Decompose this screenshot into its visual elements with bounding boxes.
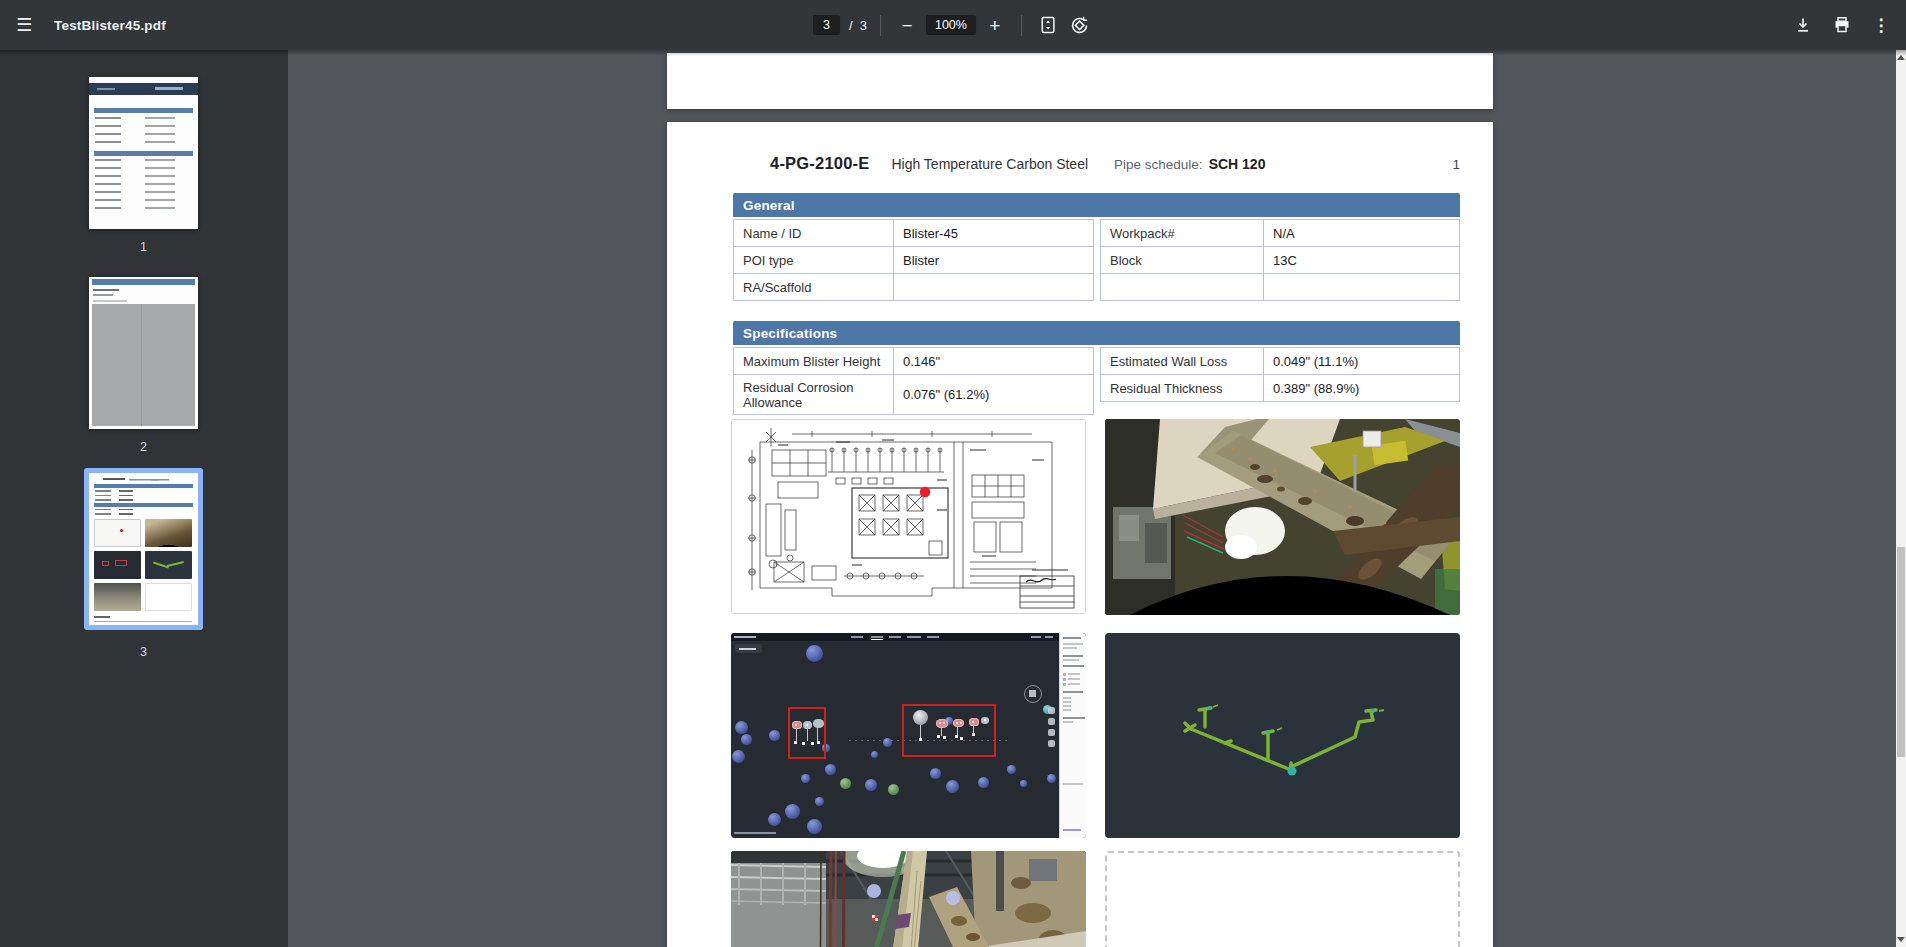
- cell-label: Residual Corrosion Allowance: [734, 375, 894, 415]
- cell-label: RA/Scaffold: [734, 274, 894, 301]
- line-id: 4-PG-2100-E: [770, 154, 869, 173]
- view-gizmo-icon: [1024, 685, 1042, 703]
- specifications-section: Specifications Maximum Blister Height 0.…: [733, 321, 1460, 415]
- poi-marker: [872, 915, 878, 921]
- toolbar-divider: [1021, 15, 1022, 36]
- fit-page-icon[interactable]: [1035, 12, 1061, 38]
- pipe-schedule-label: Pipe schedule:: [1114, 157, 1203, 172]
- report-page-number: 1: [1452, 157, 1460, 172]
- thumbnail-label-1: 1: [89, 240, 198, 254]
- mini-pipe-model: [145, 551, 192, 579]
- cell-value: 0.049" (11.1%): [1264, 348, 1460, 375]
- cell-label: Name / ID: [734, 220, 894, 247]
- thumbnail-sidebar: 1 2 3: [0, 50, 288, 947]
- cell-value: N/A: [1264, 220, 1460, 247]
- general-table-right: Workpack# N/A Block 13C: [1100, 219, 1460, 301]
- cell-value: 0.076" (61.2%): [894, 375, 1094, 415]
- thumbnail-page-2[interactable]: [89, 277, 198, 429]
- pipe-3d-model-image: [1105, 633, 1460, 838]
- thumbnail-label-3: 3: [89, 645, 198, 659]
- page-total: 3: [860, 18, 867, 33]
- plot-plan-drawing-image: [731, 419, 1086, 614]
- thumbnail-page-3-selected[interactable]: [84, 468, 203, 630]
- specifications-table-right: Estimated Wall Loss 0.049" (11.1%) Resid…: [1100, 347, 1460, 402]
- cell-label: Estimated Wall Loss: [1101, 348, 1264, 375]
- defect-highlight-box-right: [902, 704, 996, 757]
- empty-image-placeholder: [1105, 851, 1460, 947]
- mini-photo: [145, 519, 192, 547]
- pointcloud-side-panel: [1059, 633, 1086, 838]
- mini-plot-plan: [94, 519, 141, 547]
- more-options-icon[interactable]: ⋮: [1868, 12, 1894, 38]
- pdf-page-2-bottom: [667, 53, 1493, 109]
- mini-empty: [145, 583, 192, 611]
- cell-value: 13C: [1264, 247, 1460, 274]
- cell-value: 0.389" (88.9%): [1264, 375, 1460, 402]
- mini-point-cloud: [94, 551, 141, 579]
- cell-value: [894, 274, 1094, 301]
- pdf-page-3: 4-PG-2100-E High Temperature Carbon Stee…: [667, 122, 1493, 947]
- download-icon[interactable]: [1790, 12, 1816, 38]
- mini-photo-2: [94, 583, 141, 611]
- print-icon[interactable]: [1829, 12, 1855, 38]
- scan-photo-bottom-image: [731, 851, 1086, 947]
- cell-label: Maximum Blister Height: [734, 348, 894, 375]
- thumbnail-page-1[interactable]: [89, 77, 198, 229]
- cell-label: Residual Thickness: [1101, 375, 1264, 402]
- point-cloud-viewer-image: [731, 633, 1086, 838]
- thumbnail-page-3-preview: [89, 473, 198, 625]
- cell-value: Blister: [894, 247, 1094, 274]
- specifications-table-left: Maximum Blister Height 0.146" Residual C…: [733, 347, 1094, 415]
- general-table-left: Name / ID Blister-45 POI type Blister RA…: [733, 219, 1094, 301]
- zoom-level: 100%: [926, 15, 976, 35]
- rotate-icon[interactable]: [1067, 12, 1093, 38]
- material-name: High Temperature Carbon Steel: [891, 156, 1088, 172]
- scan-photo-top-image: [1105, 419, 1460, 615]
- pdf-toolbar: ☰ TestBlister45.pdf / 3 − 100% +: [0, 0, 1906, 50]
- cell-value: 0.146": [894, 348, 1094, 375]
- page-separator: /: [849, 18, 853, 33]
- report-header: 4-PG-2100-E High Temperature Carbon Stee…: [770, 154, 1460, 173]
- poi-location-marker: [920, 487, 930, 497]
- pipe-schedule-value: SCH 120: [1209, 156, 1266, 172]
- document-title: TestBlister45.pdf: [54, 18, 166, 33]
- toolbar-divider: [880, 15, 881, 36]
- thumbnail-label-2: 2: [89, 440, 198, 454]
- cell-label: [1101, 274, 1264, 301]
- cell-value: Blister-45: [894, 220, 1094, 247]
- toolbar-shadow: [0, 50, 1906, 56]
- cell-label: Block: [1101, 247, 1264, 274]
- cell-value: [1264, 274, 1460, 301]
- general-section-header: General: [733, 193, 1460, 217]
- cell-label: Workpack#: [1101, 220, 1264, 247]
- general-section: General Name / ID Blister-45 POI type Bl…: [733, 193, 1460, 301]
- zoom-in-icon[interactable]: +: [982, 12, 1008, 38]
- viewer-tools: [1048, 707, 1056, 751]
- cell-label: POI type: [734, 247, 894, 274]
- zoom-out-icon[interactable]: −: [894, 12, 920, 38]
- scroll-down-arrow[interactable]: [1897, 937, 1905, 942]
- menu-icon[interactable]: ☰: [0, 0, 48, 50]
- specifications-section-header: Specifications: [733, 321, 1460, 345]
- page-number-input[interactable]: [813, 15, 840, 35]
- scrollbar-thumb[interactable]: [1897, 547, 1905, 757]
- vertical-scrollbar[interactable]: [1896, 50, 1906, 947]
